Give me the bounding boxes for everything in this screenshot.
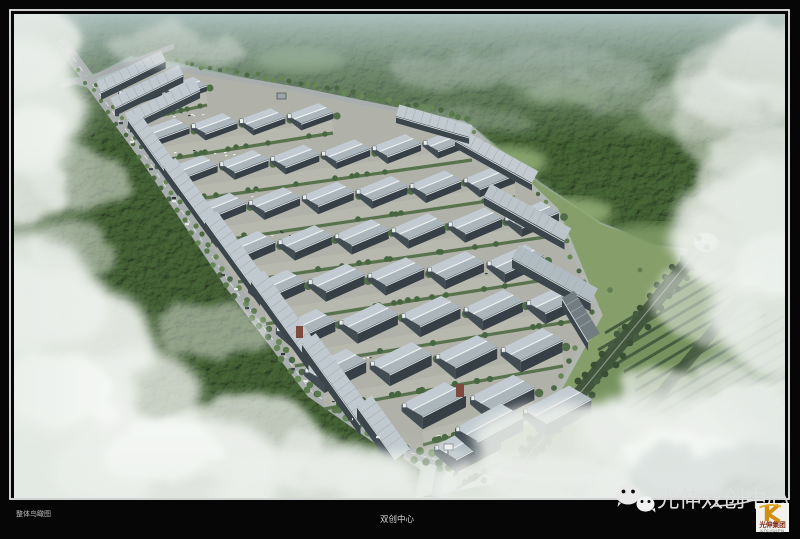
svg-text:双创中心: 双创中心 [380,514,415,524]
svg-text:整体鸟瞰图: 整体鸟瞰图 [16,509,51,518]
svg-text:KOUSHEN: KOUSHEN [760,529,784,534]
